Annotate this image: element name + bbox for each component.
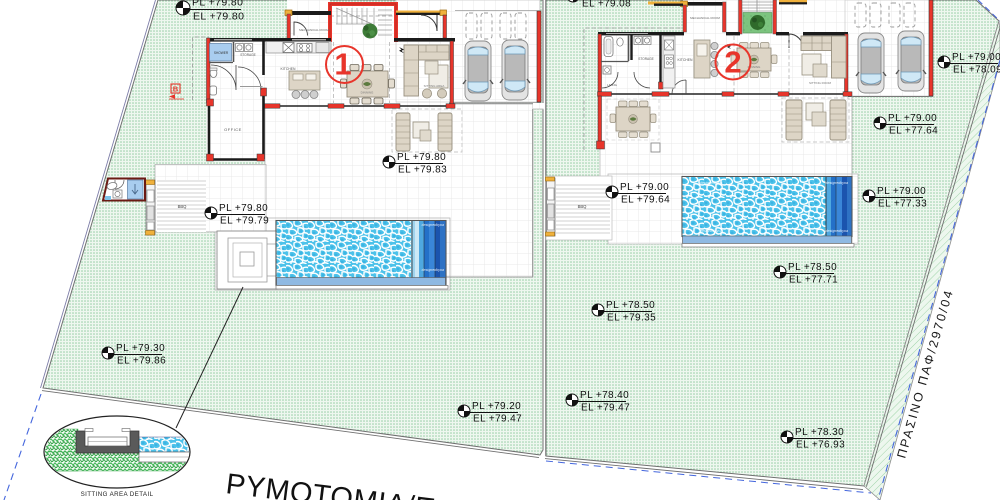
svg-text:PL +79.30: PL +79.30	[116, 343, 165, 354]
svg-text:EL +79.86: EL +79.86	[117, 356, 166, 367]
svg-text:designedbyoa: designedbyoa	[422, 223, 444, 227]
svg-text:EL +79.64: EL +79.64	[621, 195, 670, 206]
svg-text:SITTING ROOM: SITTING ROOM	[809, 81, 832, 85]
svg-text:EL +79.47: EL +79.47	[473, 414, 522, 425]
svg-text:EL +76.93: EL +76.93	[796, 440, 845, 451]
svg-text:B: B	[173, 85, 179, 94]
svg-text:designedbyoa: designedbyoa	[700, 181, 722, 185]
svg-text:PL +79.00: PL +79.00	[952, 52, 1000, 63]
svg-text:PL +79.80: PL +79.80	[219, 203, 268, 214]
svg-text:designedbyoa: designedbyoa	[700, 229, 722, 233]
svg-text:EL +79.80: EL +79.80	[193, 11, 244, 23]
svg-text:EL +78.09: EL +78.09	[953, 65, 1000, 76]
svg-text:EL +79.47: EL +79.47	[581, 403, 630, 414]
svg-text:PL +79.00: PL +79.00	[877, 186, 926, 197]
svg-text:EL +79.83: EL +79.83	[398, 165, 447, 176]
svg-text:1: 1	[334, 47, 351, 82]
svg-text:EL +79.79: EL +79.79	[220, 216, 269, 227]
svg-text:KITCHEN: KITCHEN	[281, 67, 296, 71]
svg-text:SITTING AREA: SITTING AREA	[424, 84, 445, 88]
svg-text:designedbyoa: designedbyoa	[826, 229, 848, 233]
svg-text:SITTING AREA DETAIL: SITTING AREA DETAIL	[81, 491, 154, 498]
svg-text:STORAGE: STORAGE	[240, 53, 256, 57]
svg-text:PL +78.50: PL +78.50	[788, 262, 837, 273]
svg-text:PL +78.50: PL +78.50	[606, 300, 655, 311]
svg-text:EL +79.35: EL +79.35	[607, 313, 656, 324]
svg-text:EL +77.71: EL +77.71	[789, 275, 838, 286]
svg-text:MECHANICAL ROOM: MECHANICAL ROOM	[690, 16, 720, 20]
svg-text:PL +79.80: PL +79.80	[192, 0, 243, 9]
svg-text:MECHANICAL ROOM: MECHANICAL ROOM	[299, 28, 329, 32]
svg-text:PL +79.00: PL +79.00	[888, 113, 937, 124]
svg-text:designedbyoa: designedbyoa	[422, 268, 444, 272]
svg-text:PL +79.80: PL +79.80	[397, 152, 446, 163]
svg-text:PL +78.30: PL +78.30	[795, 427, 844, 438]
svg-text:BBQ: BBQ	[578, 204, 588, 209]
svg-text:PL +78.40: PL +78.40	[580, 390, 629, 401]
svg-text:OFFICE: OFFICE	[224, 127, 242, 132]
svg-text:BBQ: BBQ	[178, 204, 188, 209]
svg-text:EL +77.64: EL +77.64	[889, 126, 938, 137]
svg-text:EL +79.08: EL +79.08	[582, 0, 631, 10]
svg-text:STORAGE: STORAGE	[638, 57, 654, 61]
svg-text:DINNING: DINNING	[361, 91, 374, 95]
svg-text:PL +79.20: PL +79.20	[472, 401, 521, 412]
svg-text:2: 2	[724, 45, 741, 80]
svg-text:SHOWER: SHOWER	[214, 51, 229, 55]
svg-text:PL +79.00: PL +79.00	[620, 182, 669, 193]
svg-text:KITCHEN: KITCHEN	[678, 58, 693, 62]
svg-text:EL +77.33: EL +77.33	[878, 199, 927, 210]
svg-text:designedbyoa: designedbyoa	[826, 181, 848, 185]
